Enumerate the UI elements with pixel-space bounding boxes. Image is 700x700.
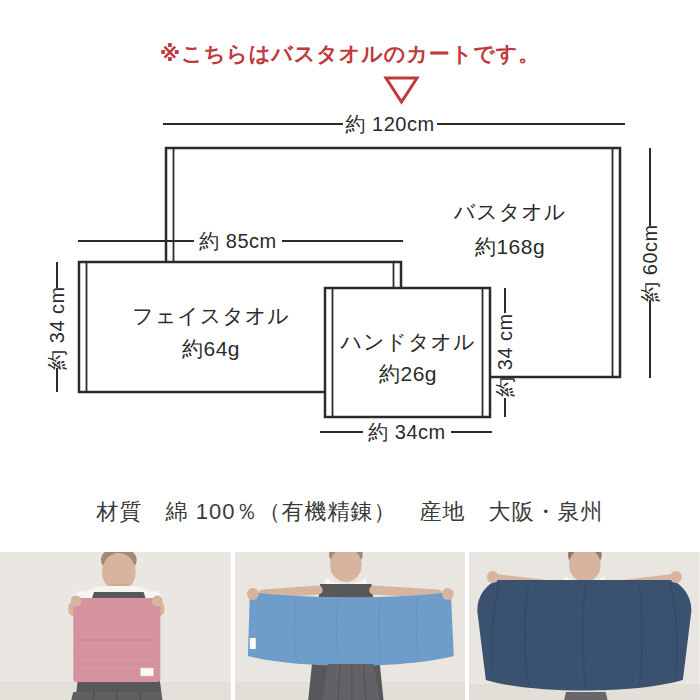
- face-height-label: 約 34 cm: [44, 286, 71, 370]
- bath-width-label: 約 120cm: [345, 111, 434, 138]
- bath-towel-name: バスタオル: [454, 198, 566, 226]
- face-towel-photo-art: [235, 552, 466, 700]
- product-info-image: ※こちらはバスタオルのカートです。: [0, 0, 700, 700]
- hand-towel-weight: 約26g: [379, 360, 437, 388]
- hand-width-label: 約 34cm: [368, 419, 445, 446]
- blue-towel: [248, 592, 454, 666]
- face-towel-weight: 約64g: [182, 335, 240, 363]
- skirt: [322, 664, 379, 700]
- right-hand: [442, 588, 454, 600]
- photo-strip: [0, 552, 700, 700]
- left-hand: [71, 596, 82, 607]
- right-hand: [670, 571, 682, 583]
- hand-towel-name: ハンドタオル: [341, 328, 476, 356]
- bath-towel-weight: 約168g: [475, 233, 545, 261]
- left-arm: [262, 590, 317, 594]
- photo-bath-towel: [469, 552, 700, 700]
- skirt: [564, 692, 608, 700]
- bath-towel-photo-art: [469, 552, 700, 700]
- towel-tag: [250, 638, 256, 649]
- photo-hand-towel: [0, 552, 231, 700]
- down-triangle-icon: [386, 78, 417, 102]
- hand-towel-photo-art: [0, 552, 231, 700]
- towel-size-diagram: [0, 0, 700, 470]
- left-hand: [487, 571, 499, 583]
- material-origin-text: 材質 綿 100％（有機精錬） 産地 大阪・泉州: [0, 497, 700, 527]
- bath-height-label: 約 60cm: [637, 224, 664, 301]
- right-arm: [373, 590, 437, 594]
- left-hand: [247, 588, 259, 600]
- towel-tag: [141, 668, 154, 676]
- face-towel-name: フェイスタオル: [132, 302, 289, 330]
- right-hand: [152, 596, 163, 607]
- hand-height-label: 約 34 cm: [492, 313, 519, 397]
- photo-face-towel: [235, 552, 466, 700]
- face-width-label: 約 85cm: [199, 228, 276, 255]
